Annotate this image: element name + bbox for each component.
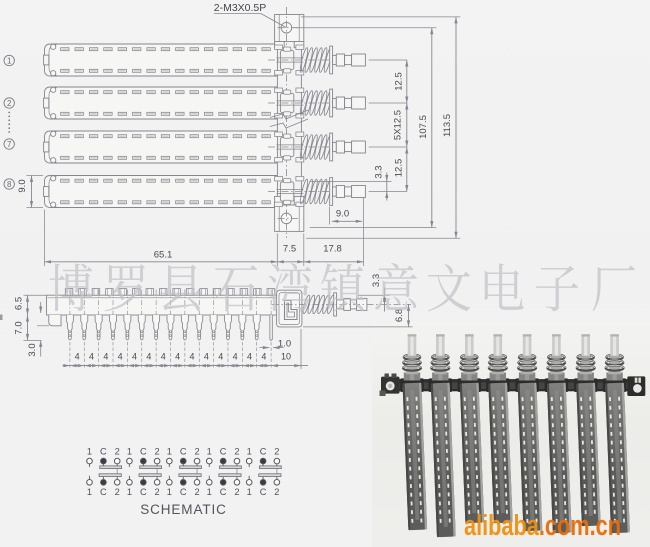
- svg-text:12.5: 12.5: [393, 159, 404, 178]
- svg-text:2: 2: [115, 447, 120, 457]
- svg-text:C: C: [100, 447, 107, 457]
- svg-text:2: 2: [234, 447, 239, 457]
- svg-text:4: 4: [204, 352, 209, 362]
- svg-text:C: C: [260, 487, 267, 497]
- svg-text:2: 2: [155, 487, 160, 497]
- svg-text:10: 10: [281, 352, 291, 362]
- svg-text:5X12.5: 5X12.5: [392, 110, 403, 140]
- svg-text:4: 4: [89, 352, 94, 362]
- svg-text:4: 4: [175, 352, 180, 362]
- svg-text:2-M3X0.5P: 2-M3X0.5P: [214, 2, 267, 14]
- svg-text:C: C: [220, 447, 227, 457]
- svg-text:9.0: 9.0: [336, 209, 349, 220]
- svg-text:3.3: 3.3: [371, 274, 382, 287]
- svg-text:7: 7: [7, 140, 12, 149]
- svg-text:1: 1: [247, 447, 252, 457]
- svg-text:2: 2: [194, 447, 199, 457]
- svg-text:7.5: 7.5: [283, 244, 296, 255]
- svg-text:1: 1: [247, 487, 252, 497]
- svg-text:4: 4: [233, 352, 238, 362]
- svg-text:4: 4: [261, 352, 266, 362]
- svg-text:1: 1: [207, 447, 212, 457]
- svg-text:C: C: [180, 447, 187, 457]
- svg-text:12.5: 12.5: [393, 72, 404, 91]
- svg-text:9.0: 9.0: [17, 179, 28, 192]
- svg-text:1: 1: [87, 487, 92, 497]
- svg-text:1: 1: [7, 56, 12, 65]
- svg-text:2: 2: [155, 447, 160, 457]
- svg-text:2: 2: [274, 487, 279, 497]
- svg-text:2: 2: [274, 447, 279, 457]
- svg-text:107.5: 107.5: [418, 115, 429, 139]
- svg-text:1: 1: [207, 487, 212, 497]
- svg-text:C: C: [180, 487, 187, 497]
- svg-text:2: 2: [194, 487, 199, 497]
- svg-text:SCHEMATIC: SCHEMATIC: [140, 502, 227, 517]
- svg-text:6.8: 6.8: [394, 309, 405, 322]
- svg-text:3.3: 3.3: [373, 165, 384, 178]
- svg-text:4: 4: [75, 352, 80, 362]
- svg-text:4: 4: [103, 352, 108, 362]
- svg-text:4: 4: [218, 352, 223, 362]
- svg-text:4: 4: [146, 352, 151, 362]
- svg-text:8: 8: [7, 180, 12, 189]
- svg-text:C: C: [220, 487, 227, 497]
- svg-text:2: 2: [234, 487, 239, 497]
- svg-text:C: C: [140, 487, 147, 497]
- svg-text:6.5: 6.5: [14, 297, 25, 310]
- svg-text:113.5: 113.5: [442, 114, 453, 137]
- svg-text:1: 1: [87, 447, 92, 457]
- svg-text:4: 4: [132, 352, 137, 362]
- svg-text:1: 1: [127, 487, 132, 497]
- svg-text:4: 4: [190, 352, 195, 362]
- svg-text:1: 1: [167, 487, 172, 497]
- svg-text:4: 4: [161, 352, 166, 362]
- svg-text:7.0: 7.0: [14, 321, 25, 334]
- svg-text:4: 4: [118, 352, 123, 362]
- svg-text:3.0: 3.0: [27, 343, 38, 356]
- svg-text:1: 1: [167, 447, 172, 457]
- svg-text:C: C: [100, 487, 107, 497]
- svg-text:65.1: 65.1: [154, 250, 173, 261]
- svg-text:1: 1: [127, 447, 132, 457]
- svg-text:C: C: [140, 447, 147, 457]
- svg-text:4: 4: [247, 352, 252, 362]
- svg-text:2: 2: [7, 99, 12, 108]
- svg-text:17.8: 17.8: [323, 244, 342, 255]
- svg-text:C: C: [260, 447, 267, 457]
- svg-text:2: 2: [115, 487, 120, 497]
- svg-text:alibaba.com.cn: alibaba.com.cn: [464, 510, 621, 542]
- svg-text:1.0: 1.0: [278, 339, 291, 350]
